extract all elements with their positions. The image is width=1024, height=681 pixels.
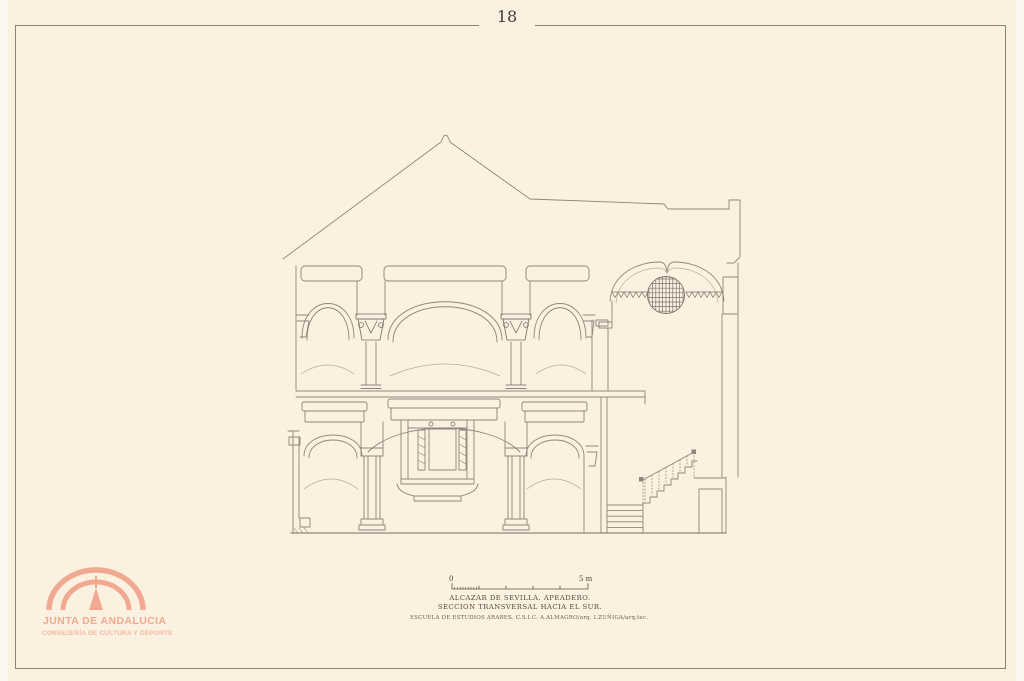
drawing-title-line1: ALCAZAR DE SEVILLA. APEADERO. [410, 594, 630, 603]
drawing-title-line2: SECCION TRANSVERSAL HACIA EL SUR. [410, 603, 630, 612]
logo-department-text: CONSEJERÍA DE CULTURA Y DEPORTE [42, 630, 173, 637]
drawing-credits: ESCUELA DE ESTUDIOS ARABES. C.S.I.C. A.A… [410, 615, 630, 621]
logo-organization-text: JUNTA DE ANDALUCIA [43, 615, 166, 627]
stair-balusters [643, 452, 694, 503]
roof-outline [283, 135, 740, 263]
upper-arcade [296, 266, 645, 404]
plate-page: 18 [0, 0, 1024, 681]
scale-zero-label: 0 [449, 575, 453, 583]
title-block: ALCAZAR DE SEVILLA. APEADERO. SECCION TR… [410, 594, 630, 621]
plate-number: 18 [479, 5, 535, 27]
ground-floor [288, 398, 726, 533]
section-drawing [0, 0, 1024, 681]
stair-doorway [699, 489, 722, 533]
junta-de-andalucia-logo-icon [41, 564, 151, 616]
scale-bar [452, 584, 588, 590]
staircase [607, 450, 726, 534]
ground-paired-columns [359, 448, 529, 530]
upper-capitals [356, 314, 531, 340]
lattice-oculus [646, 276, 686, 314]
scale-end-label: 5 m [579, 575, 592, 583]
